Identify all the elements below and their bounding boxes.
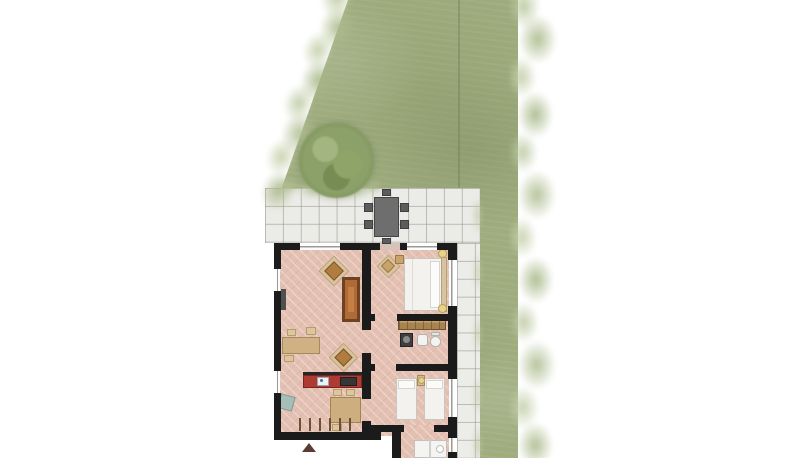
desk-chair-3	[284, 355, 294, 362]
patio-chair-left-1	[364, 203, 373, 212]
single-bed-2-pillow	[426, 380, 443, 389]
patio-chair-left-2	[364, 220, 373, 229]
patio-chair-bottom	[382, 238, 391, 244]
wall-right-1	[448, 243, 457, 260]
entrance-arrow	[302, 443, 316, 452]
desk-chair-1	[287, 329, 296, 336]
patio-door-threshold	[380, 243, 400, 250]
dining-table	[330, 397, 361, 423]
double-bed-pillows	[430, 261, 440, 308]
wall-shelf	[281, 289, 286, 310]
window-top-1	[300, 244, 340, 250]
wall-bath-a	[371, 314, 375, 321]
site-plan	[0, 0, 800, 458]
toilet-bowl	[430, 336, 441, 347]
wall-right-4	[448, 452, 457, 458]
window-left-1	[275, 269, 281, 291]
dining-chair-1	[333, 389, 342, 396]
window-right-2	[449, 379, 455, 417]
wall-mid-2	[362, 353, 371, 399]
cooktop	[340, 377, 357, 386]
wall-mid-3	[362, 421, 371, 440]
wall-bath2-b	[396, 364, 448, 371]
kitchen-faucet	[320, 379, 323, 382]
patio-chair-right-1	[400, 203, 409, 212]
wall-bed2-a	[371, 425, 404, 432]
patio-chair-right-2	[400, 220, 409, 229]
dining-chair-2	[346, 389, 355, 396]
patio-chair-top	[382, 189, 391, 196]
double-bed-fold	[412, 259, 413, 310]
window-tick-4	[329, 418, 331, 431]
cabinet-shelf	[348, 287, 354, 312]
wall-top-3	[400, 243, 407, 250]
window-left-2	[275, 371, 281, 393]
wall-bath2-a	[371, 364, 375, 371]
window-right-1	[449, 260, 455, 306]
floor-plan	[0, 0, 800, 458]
shower-divider	[429, 440, 431, 458]
window-top-2	[407, 244, 437, 250]
nightstand-lamp-3	[418, 377, 425, 384]
desk-chair-2	[306, 327, 316, 335]
nightstand-lamp-1	[438, 249, 447, 258]
washing-machine-door	[403, 336, 410, 343]
window-right-3	[449, 438, 455, 452]
wall-bath-b	[397, 314, 448, 321]
wall-utility	[392, 432, 401, 458]
single-bed-1-pillow	[398, 380, 415, 389]
window-tick-6	[349, 418, 351, 431]
wall-mid-1	[362, 243, 371, 330]
wall-top-2	[340, 243, 380, 250]
utility-sink	[436, 445, 444, 453]
wall-left-1	[274, 243, 281, 269]
window-tick-1	[299, 418, 301, 431]
wall-left-2	[274, 291, 281, 371]
nightstand-lamp-2	[438, 304, 447, 313]
wall-right-2	[448, 306, 457, 379]
window-tick-3	[319, 418, 321, 431]
desk	[282, 337, 320, 354]
bathroom-sink	[417, 334, 428, 346]
patio-table	[374, 197, 399, 237]
window-tick-5	[339, 418, 341, 431]
window-tick-2	[309, 418, 311, 431]
bedroom1-side-table	[395, 255, 404, 264]
wall-bed2-b	[434, 425, 448, 432]
wall-right-3	[448, 417, 457, 438]
kitchen-sink	[317, 377, 329, 386]
